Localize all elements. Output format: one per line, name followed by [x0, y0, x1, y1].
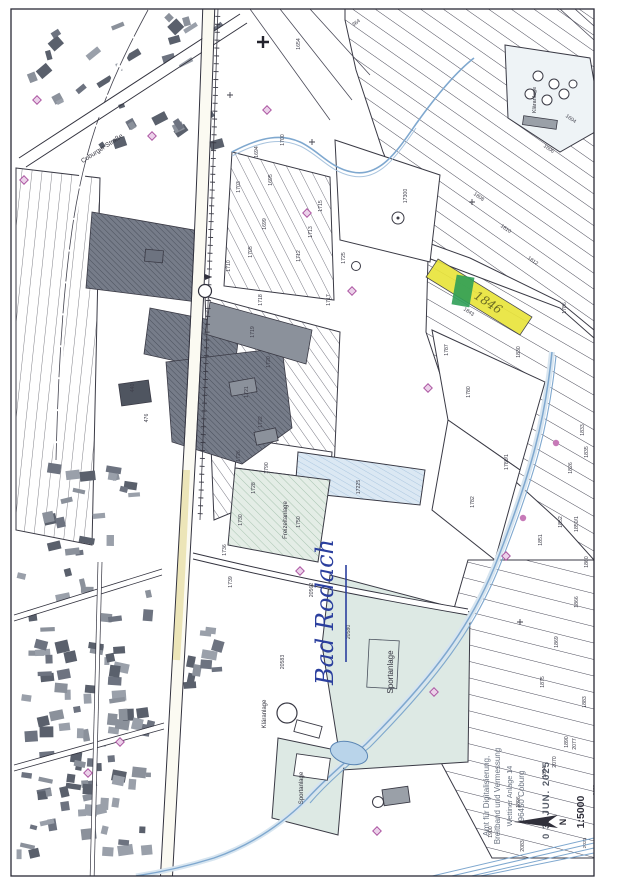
- building: [119, 709, 128, 721]
- building: [109, 665, 121, 678]
- building: [75, 84, 86, 95]
- map-label: Freizeitanlage: [283, 500, 289, 538]
- parcel-number: 1780: [466, 386, 472, 398]
- building: [209, 138, 224, 150]
- building: [63, 650, 77, 663]
- scanned-cadastral-map-page: 3641654170016941695170316991705171017121…: [0, 0, 626, 885]
- parcel-number: 1705: [248, 246, 254, 258]
- building: [37, 715, 50, 727]
- parcel-number: 1713: [308, 226, 314, 238]
- parcel-number: 1722: [258, 416, 264, 428]
- parcel-number: 1725: [341, 252, 347, 264]
- building: [40, 726, 54, 737]
- parcel-number: 1780/1: [504, 454, 510, 470]
- parcel-number: 20583: [280, 655, 286, 670]
- building: [143, 609, 154, 621]
- parcel-number: 1717: [326, 294, 332, 306]
- building: [107, 755, 115, 762]
- building: [83, 693, 91, 703]
- building: [77, 728, 84, 738]
- parcel-number: 1715: [318, 200, 324, 212]
- parcel-number: 1786: [562, 302, 568, 314]
- buildings-east-of-road: [183, 627, 224, 689]
- parcel-number: 1875: [540, 676, 546, 688]
- building: [74, 760, 86, 768]
- parcel-number: 1866: [574, 596, 580, 608]
- boundary-marker-icon: [424, 384, 432, 392]
- building: [48, 35, 64, 51]
- building: [49, 709, 64, 721]
- north-label: N: [558, 819, 568, 826]
- stamp-line: Wettiner Anlage 14: [505, 766, 514, 827]
- boundary-marker-icon: [348, 287, 356, 295]
- building: [141, 845, 153, 856]
- scale-text: 1:5000: [575, 795, 587, 828]
- parcel-number: 1782: [470, 496, 476, 508]
- sportanlage-area-main: [322, 575, 470, 770]
- building: [111, 22, 125, 31]
- boundary-marker-icon: [296, 567, 304, 575]
- building: [107, 535, 114, 546]
- bold-cross-icon: [257, 36, 269, 48]
- map-content: 3641654170016941695170316991705171017121…: [14, 0, 602, 885]
- parcel-number: 1830: [516, 346, 522, 358]
- parcel-number: 1869: [554, 636, 560, 648]
- building: [36, 63, 53, 79]
- building: [78, 809, 86, 816]
- stamp-line: Breitband und Vermessung: [493, 748, 502, 845]
- building: [40, 627, 55, 632]
- parcel-number: 1787: [444, 344, 450, 356]
- boundary-marker-icon: [148, 132, 156, 140]
- parcel-number: 17300: [403, 189, 409, 204]
- parcel-number: 1728: [251, 482, 257, 494]
- building: [183, 681, 196, 688]
- building: [113, 646, 125, 654]
- building: [93, 513, 106, 519]
- parcel-number: 2083: [520, 840, 526, 852]
- parcel-number: 17225: [356, 480, 362, 495]
- building: [45, 655, 52, 664]
- building: [51, 29, 62, 39]
- parcel-number: 440: [130, 384, 136, 393]
- building: [79, 578, 86, 588]
- building: [117, 844, 133, 856]
- stamp-line: 96450 Coburg: [517, 771, 526, 822]
- building: [151, 111, 168, 126]
- parcel-number: 1721: [244, 386, 250, 398]
- parcel-number: 1718: [258, 294, 264, 306]
- bridge-symbol-icon: [520, 515, 526, 521]
- building: [21, 772, 32, 779]
- building: [105, 653, 115, 663]
- building: [168, 35, 181, 45]
- bridge-symbol-icon: [553, 440, 559, 446]
- parcel-number: 1890: [564, 736, 570, 748]
- building: [73, 706, 81, 713]
- building: [42, 511, 55, 524]
- stamp-line: Amt für Digitalisierung,: [482, 756, 491, 836]
- building: [182, 16, 191, 26]
- parcel-number: 1699: [262, 218, 268, 230]
- clarifier-tank-icon: [277, 703, 297, 723]
- parcel-number: 1739: [228, 576, 234, 588]
- cadastral-map-svg: 3641654170016941695170316991705171017121…: [0, 0, 626, 885]
- parcel-number: 1736: [222, 544, 228, 556]
- parcel-number: 1850/1: [574, 516, 580, 532]
- parcel-number: 1700: [280, 134, 286, 146]
- parcel-number: 476: [144, 414, 150, 423]
- map-label: Kläranlage: [532, 87, 538, 113]
- parcel-number: 1860: [584, 556, 590, 568]
- building: [38, 777, 53, 784]
- map-label: Sportanlage: [299, 771, 305, 804]
- boundary-marker-icon: [84, 769, 92, 777]
- small-number-bottom: 2023: [582, 837, 588, 848]
- building: [38, 671, 52, 676]
- building: [79, 470, 95, 481]
- building: [200, 659, 212, 669]
- parcel-number: 1883: [582, 696, 588, 708]
- building: [28, 848, 40, 859]
- building: [30, 824, 38, 830]
- parcel-number: 20580: [346, 625, 352, 640]
- building: [101, 825, 109, 835]
- parcel-number: 1703: [236, 181, 242, 193]
- building: [106, 465, 122, 474]
- parcel-number: 1835: [584, 446, 590, 458]
- building: [65, 470, 80, 481]
- building: [146, 773, 151, 778]
- building: [136, 707, 149, 718]
- building: [57, 668, 71, 680]
- map-label: Sportanlage: [386, 650, 395, 694]
- boundary-marker-icon: [33, 96, 41, 104]
- building: [47, 463, 62, 475]
- building: [20, 843, 35, 850]
- parcel-number: 1720: [266, 356, 272, 368]
- parcel-number: 1694: [254, 146, 260, 158]
- building: [21, 694, 31, 702]
- building: [86, 46, 102, 60]
- building: [211, 639, 225, 653]
- parcel-number: 1790: [264, 462, 270, 474]
- date-stamp: 0 3. JUN. 2025: [541, 761, 552, 839]
- building: [17, 572, 27, 580]
- building: [128, 779, 136, 790]
- building: [55, 640, 70, 654]
- boundary-marker-icon: [263, 106, 271, 114]
- building: [108, 676, 122, 685]
- building: [64, 568, 72, 577]
- parcel-number: 1710: [226, 260, 232, 272]
- town-buildings-topleft: [27, 13, 225, 151]
- parcel-number: 1852: [558, 516, 564, 528]
- building: [212, 667, 223, 672]
- parcel-number: 1726: [236, 450, 242, 462]
- building: [111, 797, 119, 807]
- building: [132, 767, 147, 779]
- building: [54, 683, 67, 694]
- building: [128, 492, 140, 497]
- parcel-number: 2070: [552, 756, 558, 768]
- monument-icon: [199, 285, 212, 298]
- parcel-number: 1654: [296, 38, 302, 50]
- parcel-number: 2077: [572, 738, 578, 750]
- map-label: Kläranlage: [262, 699, 268, 728]
- building: [24, 730, 38, 742]
- building: [164, 13, 174, 23]
- building: [139, 826, 145, 833]
- building: [118, 839, 129, 845]
- handwritten-place-name: Bad Rodach: [311, 539, 339, 686]
- building: [17, 849, 22, 859]
- parcel-number: 1750: [296, 516, 302, 528]
- parcel-number: 1695: [268, 174, 274, 186]
- boundary-marker-icon: [373, 827, 381, 835]
- parcel-number: 1719: [250, 326, 256, 338]
- building: [102, 847, 114, 857]
- building: [59, 723, 71, 732]
- building: [45, 50, 53, 60]
- building: [145, 590, 152, 599]
- building: [34, 639, 48, 651]
- small-number-top: 2072: [592, 784, 598, 795]
- building: [66, 774, 75, 783]
- building: [60, 801, 70, 811]
- parcel-number: 1826: [568, 462, 574, 474]
- parcel-number: 1833: [580, 424, 586, 436]
- parcel-number: 1730: [238, 514, 244, 526]
- building: [47, 540, 62, 551]
- parcel-number: 1712: [296, 250, 302, 262]
- building: [27, 71, 38, 83]
- parcel-number: 1851: [538, 534, 544, 546]
